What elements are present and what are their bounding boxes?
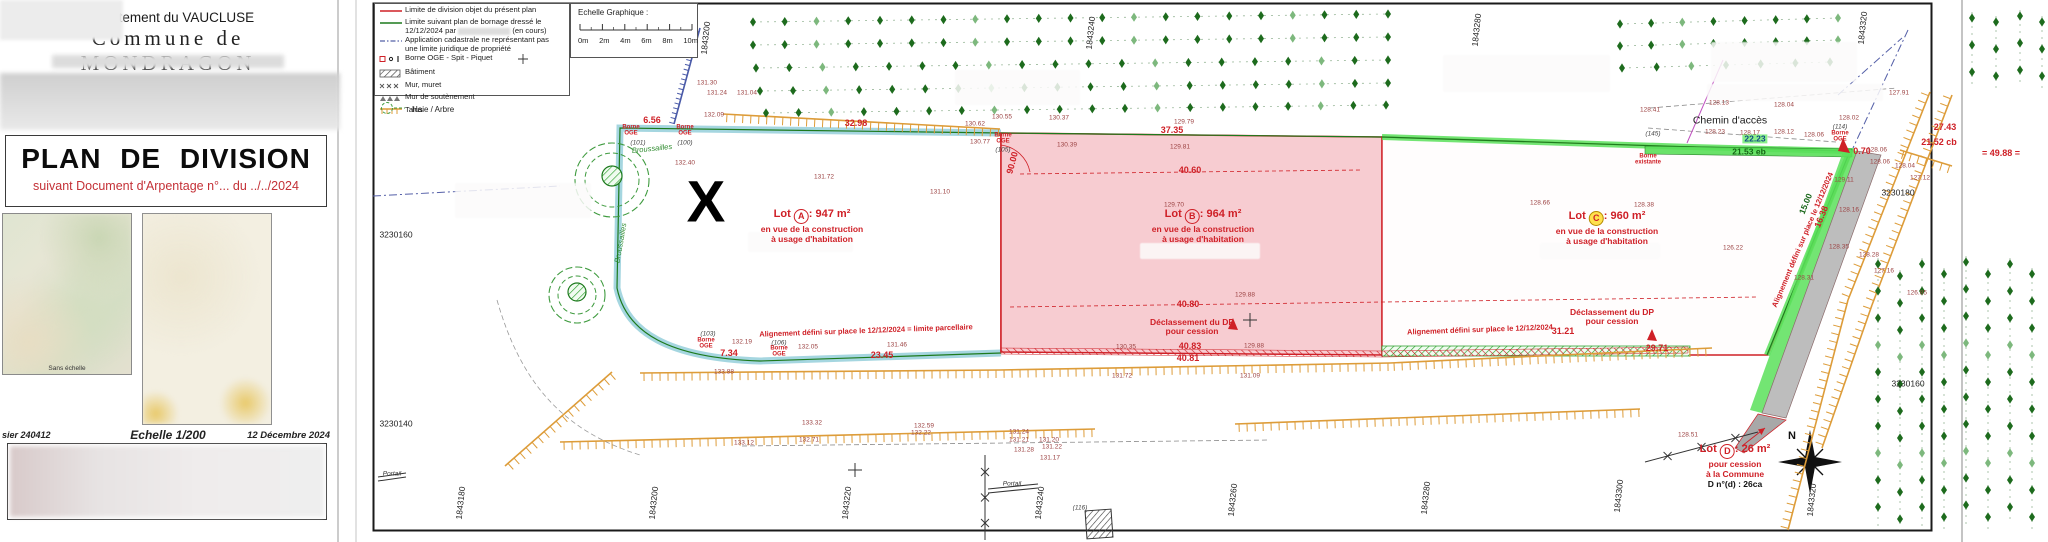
scale-tick-label: 6m: [641, 36, 651, 45]
signature-box: [7, 443, 327, 520]
legend-item-division: Limite de division objet du présent plan: [379, 6, 569, 18]
graphic-scale-title: Echelle Graphique :: [578, 8, 697, 17]
division-line-swatch: [379, 6, 405, 18]
legend-item-haie: Haie / Arbre: [380, 101, 454, 117]
redacted-patch: [1443, 55, 1610, 92]
scale-tick-label: 4m: [620, 36, 630, 45]
borne-symbols-swatch: [379, 54, 405, 66]
redacted-patch: [748, 232, 853, 252]
graphic-scale-box: Echelle Graphique : 0m2m4m6m8m10m: [570, 3, 698, 58]
footer-row: sier 240412 Echelle 1/200 12 Décembre 20…: [0, 428, 336, 442]
legend-item-mur: Mur, muret: [379, 81, 569, 93]
redacted-band: [0, 73, 340, 130]
redacted-patch: [1140, 243, 1260, 259]
date-label: 12 Décembre 2024: [247, 430, 330, 441]
plan-de-division-sheet: Département du VAUCLUSE Commune de MONDR…: [0, 0, 2048, 542]
redacted-patch: [455, 183, 591, 218]
legend-box: Limite de division objet du présent plan…: [374, 3, 570, 96]
legend-item-borne: Borne OGE - Spit - Piquet: [379, 54, 569, 67]
redacted-patch: [1540, 243, 1660, 259]
batiment-swatch: [379, 68, 405, 81]
piquet-cross-icon: [518, 54, 528, 67]
photo-thumbnail: [0, 0, 123, 40]
redacted-strip: [52, 55, 284, 68]
legend-item-batiment: Bâtiment: [379, 68, 569, 81]
redacted-patch: [1707, 84, 1883, 101]
graphic-scale-labels: 0m2m4m6m8m10m: [578, 36, 698, 45]
title-box: PLAN DE DIVISION suivant Document d'Arpe…: [5, 135, 327, 207]
redacted-name: [458, 28, 510, 35]
scale-tick-label: 0m: [578, 36, 588, 45]
page-title: PLAN DE DIVISION: [6, 143, 326, 175]
graphic-scale-bar: [578, 20, 698, 34]
cadastre-extract-thumbnail: [142, 213, 272, 425]
location-map-thumbnail: Sans échelle: [2, 213, 132, 375]
page-subtitle: suivant Document d'Arpentage n°... du ..…: [6, 179, 326, 193]
legend-item-bornage: Limite suivant plan de bornage dressé le…: [379, 18, 569, 36]
haie-symbol: [380, 101, 406, 117]
scale-tick-label: 10m: [683, 36, 698, 45]
scale-tick-label: 8m: [662, 36, 672, 45]
bornage-line-swatch: [379, 18, 405, 30]
redacted-patch: [1711, 42, 1857, 82]
mur-swatch: [379, 81, 405, 93]
building-hatch: [1085, 509, 1113, 539]
cadastre-line-swatch: [379, 36, 405, 48]
scale-tick-label: 2m: [599, 36, 609, 45]
legend-item-cadastre: Application cadastrale ne représentant p…: [379, 36, 569, 54]
redacted-patch: [955, 70, 1080, 105]
map-caption: Sans échelle: [3, 365, 131, 372]
